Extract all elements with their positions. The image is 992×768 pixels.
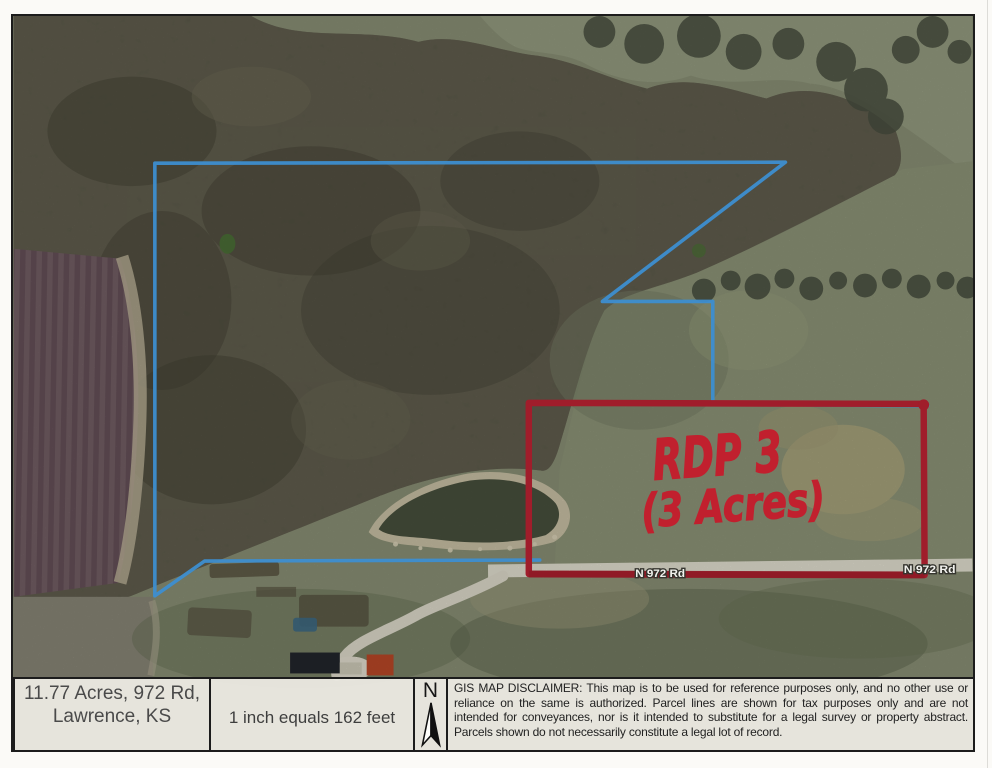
scanned-map-page: RDP 3 (3 Acres) N 972 Rd N 972 Rd 11.77 …: [0, 0, 992, 768]
address-panel: 11.77 Acres, 972 Rd, Lawrence, KS: [15, 679, 211, 750]
aerial-imagery: [14, 16, 973, 750]
info-bar: 11.77 Acres, 972 Rd, Lawrence, KS 1 inch…: [13, 677, 975, 752]
aerial-map: RDP 3 (3 Acres) N 972 Rd N 972 Rd: [13, 16, 973, 750]
scan-edge-line: [987, 0, 988, 768]
road-label-left: N 972 Rd: [635, 568, 685, 580]
disclaimer-panel: GIS MAP DISCLAIMER: This map is to be us…: [448, 679, 973, 750]
scale-text: 1 inch equals 162 feet: [229, 708, 395, 727]
map-frame: RDP 3 (3 Acres) N 972 Rd N 972 Rd: [11, 14, 975, 752]
address-line2: Lawrence, KS: [15, 706, 209, 729]
north-arrow-icon: [419, 701, 443, 749]
address-line1: 11.77 Acres, 972 Rd,: [15, 683, 209, 706]
north-arrow-panel: N: [415, 679, 448, 750]
road-label-right: N 972 Rd: [904, 564, 956, 576]
north-label: N: [415, 680, 446, 701]
disclaimer-text: GIS MAP DISCLAIMER: This map is to be us…: [454, 681, 968, 739]
scale-panel: 1 inch equals 162 feet: [211, 679, 415, 750]
